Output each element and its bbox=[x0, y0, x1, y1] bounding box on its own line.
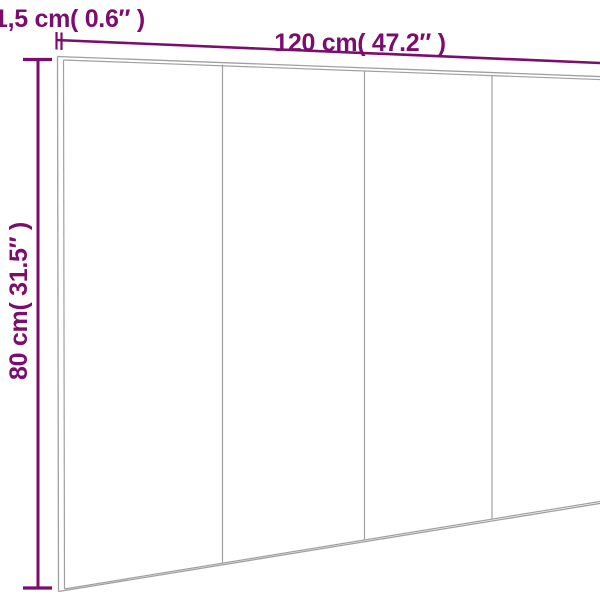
height-dimension-label: 80 cm( 31.5″ ) bbox=[5, 222, 33, 380]
thickness-dimension-label: 1,5 cm( 0.6″ ) bbox=[0, 5, 145, 33]
width-dimension-label: 120 cm( 47.2″ ) bbox=[274, 29, 445, 57]
panel-front-face bbox=[58, 57, 600, 592]
product-dimension-diagram: 1,5 cm( 0.6″ ) 120 cm( 47.2″ ) 80 cm( 31… bbox=[0, 0, 600, 600]
diagram-canvas: 1,5 cm( 0.6″ ) 120 cm( 47.2″ ) 80 cm( 31… bbox=[0, 0, 600, 600]
